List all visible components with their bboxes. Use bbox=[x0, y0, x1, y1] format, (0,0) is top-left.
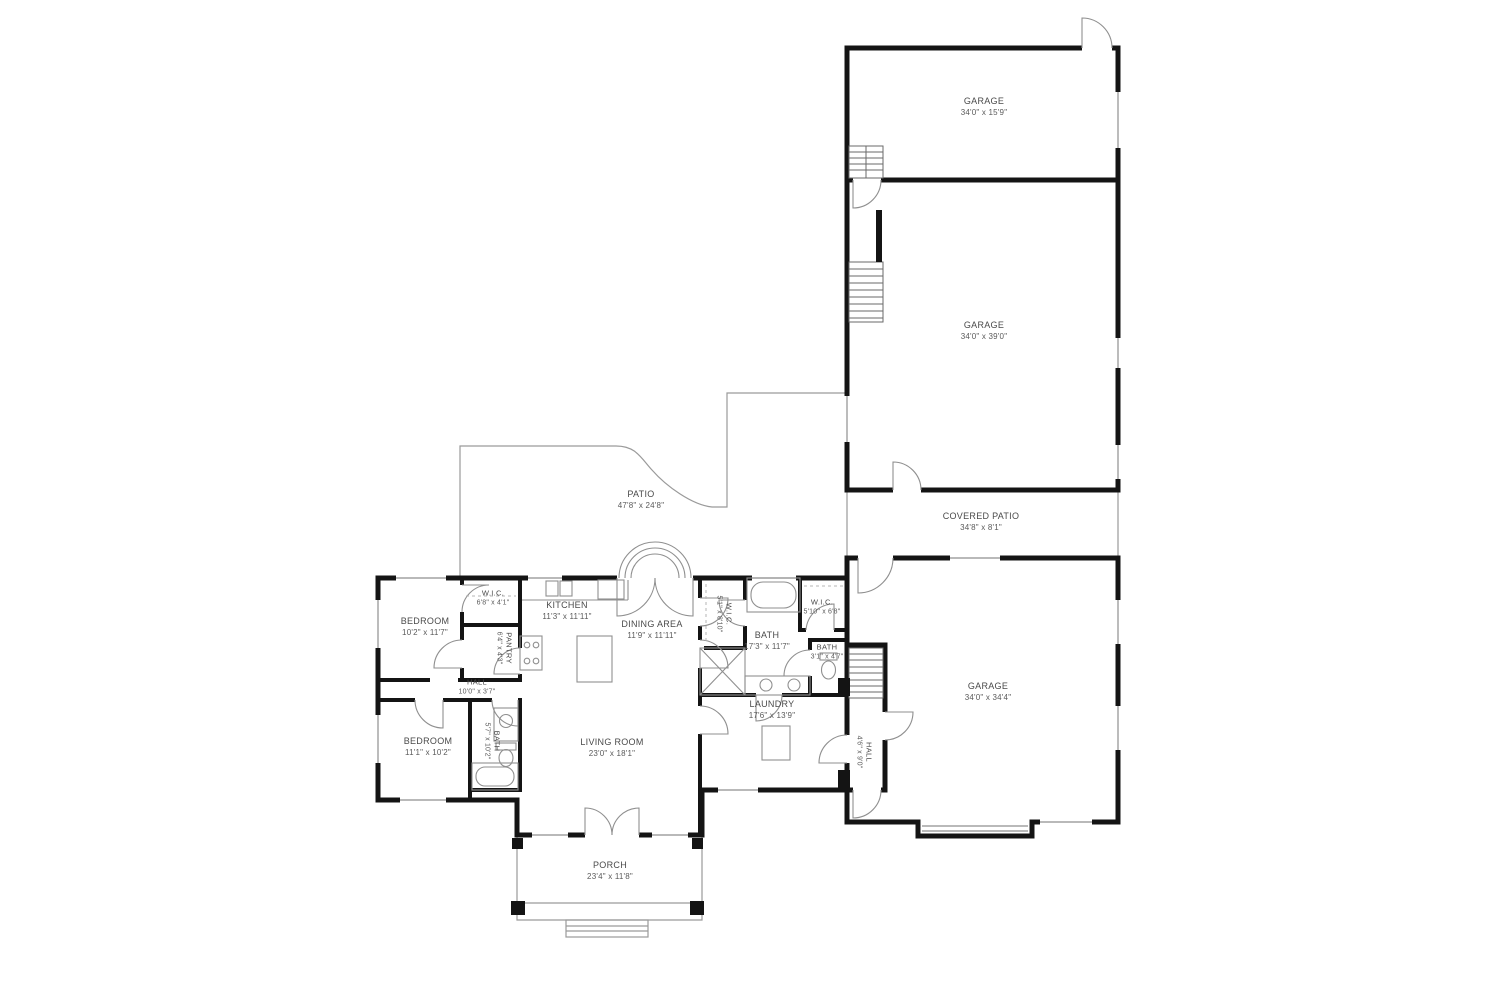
interior-walls bbox=[378, 578, 847, 835]
kitchen-fixtures bbox=[520, 580, 628, 682]
bath-fixtures bbox=[472, 578, 837, 790]
floorplan-canvas: GARAGE 34'0" x 15'9" GARAGE 34'0" x 39'0… bbox=[0, 0, 1500, 994]
wall-openings bbox=[374, 44, 1122, 839]
exterior-walls bbox=[378, 48, 1118, 836]
closet-rods bbox=[466, 584, 844, 644]
floorplan-drawing bbox=[0, 0, 1500, 994]
windows bbox=[378, 92, 1118, 835]
porch-outline bbox=[517, 837, 702, 937]
patio-outline bbox=[460, 393, 1118, 576]
